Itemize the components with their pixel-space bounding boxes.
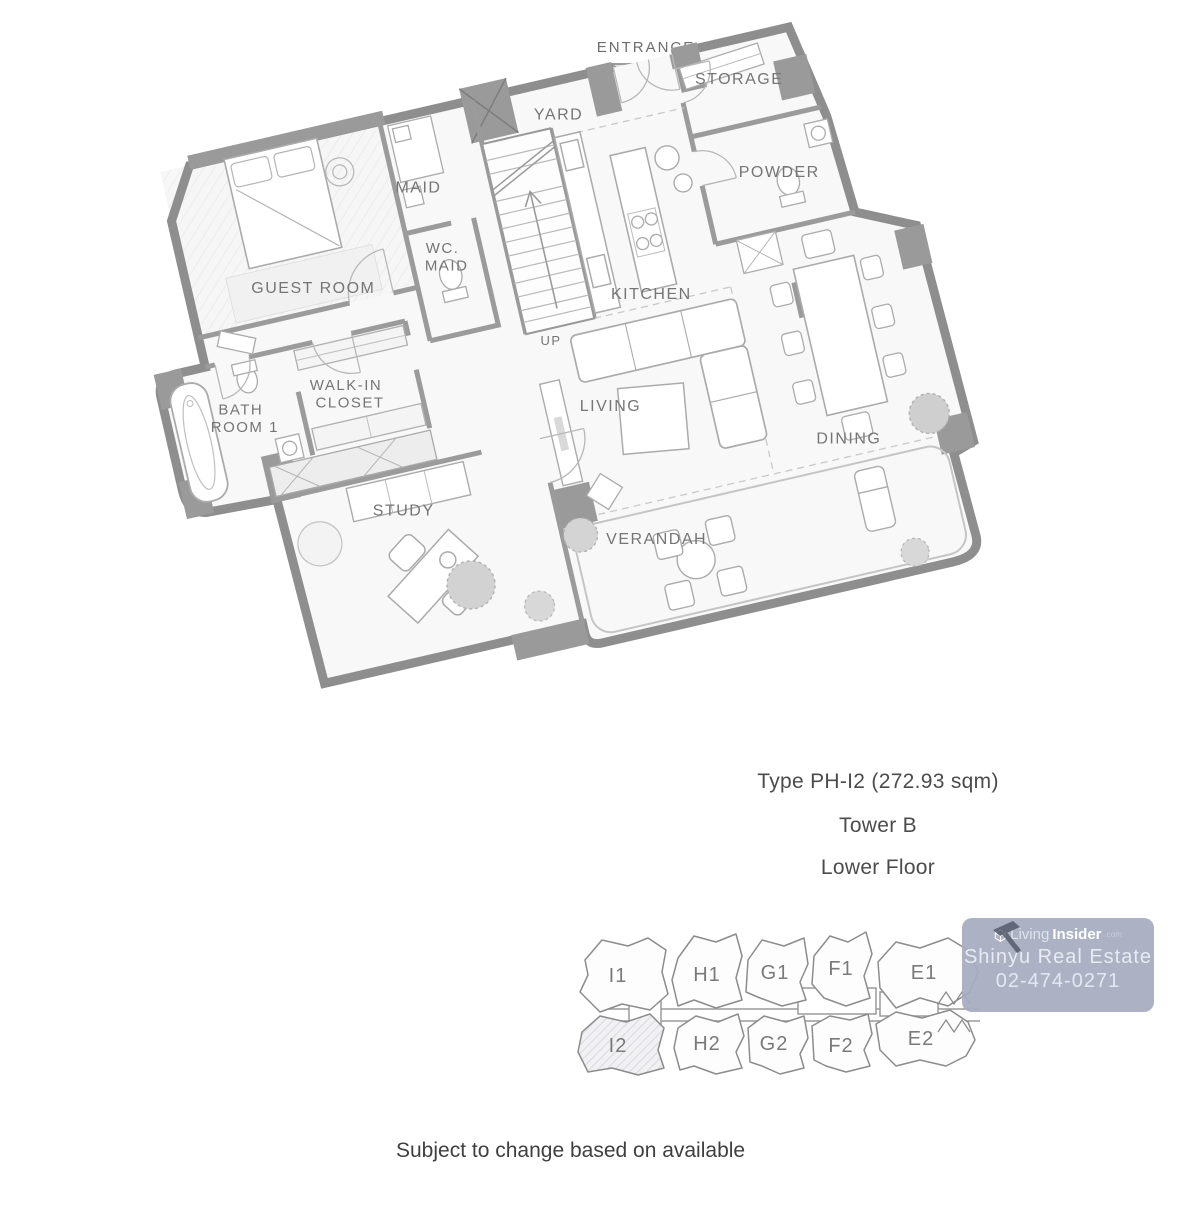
room-label-wc-maid-1: WC. [426,240,460,257]
scanned-floorplan-page: { "colors": { "wall_gray": "#8e8e8e", "c… [0,0,1200,1215]
brand-name: Insider [1052,927,1101,943]
room-label-closet-1: WALK-IN [310,377,382,394]
unit-type-line: Type PH-I2 (272.93 sqm) [628,770,1128,794]
room-label-guest-room: GUEST ROOM [251,280,375,297]
room-label-bath-2: ROOM 1 [211,419,279,436]
watermark-tool-icon [985,918,1037,967]
room-label-study: STUDY [373,502,435,519]
stairs-up-label: UP [541,333,562,348]
watermark-phone: 02-474-0271 [962,970,1154,993]
room-label-kitchen: KITCHEN [611,286,692,303]
brand-tld: .com [1105,927,1122,943]
keyplan-label-g1: G1 [761,962,790,984]
keyplan-label-i2: I2 [609,1035,628,1057]
room-label-verandah: VERANDAH [606,531,707,548]
keyplan-label-e2: E2 [908,1028,934,1050]
room-label-wc-maid-2: MAID [425,257,469,274]
keyplan-label-g2: G2 [760,1033,789,1055]
room-label-living: LIVING [580,398,641,415]
keyplan-label-f1: F1 [828,958,853,980]
keyplan-label-e1: E1 [911,962,937,984]
bath-basin [275,434,304,463]
room-label-storage: STORAGE [695,71,783,88]
room-label-yard: YARD [534,106,583,123]
disclaimer-text: Subject to change based on available [396,1139,745,1163]
room-label-maid: MAID [395,180,441,197]
keyplan-label-h1: H1 [693,964,721,986]
room-label-bath-1: BATH [218,401,263,418]
room-label-powder: POWDER [739,164,820,181]
coffee-table [618,383,690,455]
room-label-dining: DINING [816,430,881,447]
floor-plan-drawing: ENTRANCE [0,0,1200,700]
floor-line: Lower Floor [628,856,1128,880]
keyplan-label-h2: H2 [693,1033,721,1055]
room-label-closet-2: CLOSET [316,395,385,412]
tower-line: Tower B [628,814,1128,838]
keyplan-label-i1: I1 [609,965,628,987]
keyplan-label-f2: F2 [828,1035,853,1057]
